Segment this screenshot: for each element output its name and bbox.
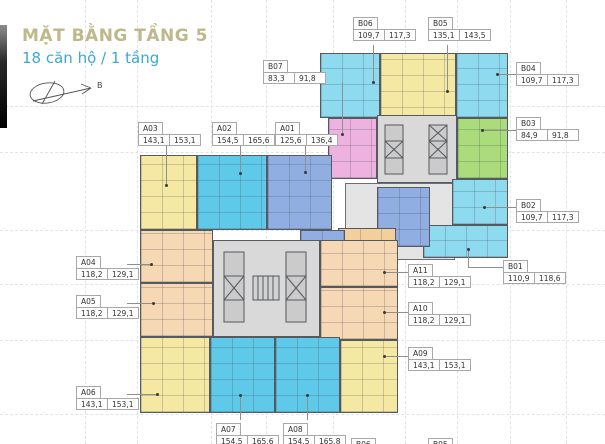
- apartment-label-a03: A03 143,1153,1: [138, 118, 201, 146]
- leader-dot: [150, 263, 153, 266]
- apartment-region-a01: [267, 155, 332, 230]
- apartment-region-b04: [456, 53, 508, 118]
- apartment-label-a05: A05 118,2129,1: [76, 291, 139, 319]
- apartment-label-a01: A01 125,6136,4: [275, 118, 338, 146]
- leader-dot: [304, 171, 307, 174]
- apartment-label-b02: B02 109,7117,3: [516, 195, 579, 223]
- apartment-label-b01: B01 110,9118,6: [503, 256, 566, 284]
- leader-dot: [341, 133, 344, 136]
- apartment-label-b06: B06 109,7117,3: [353, 13, 416, 41]
- leader-dot: [239, 394, 242, 397]
- apartment-label-a08: A08 154,5165,8: [283, 419, 346, 444]
- apartment-label-b07: B07 83,391,8: [263, 56, 326, 84]
- leader-line: [497, 74, 517, 75]
- left-edge-artifact: [0, 25, 7, 128]
- leader-dot: [165, 184, 168, 187]
- apartment-region-b02: [452, 179, 508, 225]
- grid-line: [0, 152, 605, 153]
- apartment-region-b06: [320, 53, 380, 118]
- apartment-region-a02: [197, 155, 267, 230]
- leader-dot: [481, 129, 484, 132]
- leader-dot: [372, 81, 375, 84]
- north-compass-icon: B: [25, 78, 110, 110]
- apartment-label-partial-2: B05: [428, 434, 453, 444]
- apartment-label-partial-1: B06: [351, 434, 376, 444]
- apartment-region-a04: [140, 230, 213, 283]
- apartment-label-a07: A07 154,5165,6: [216, 419, 279, 444]
- apartment-region-b03: [457, 118, 508, 179]
- apartment-region-a10: [320, 287, 398, 340]
- leader-dot: [467, 248, 470, 251]
- leader-dot: [156, 393, 159, 396]
- leader-dot: [152, 302, 155, 305]
- leader-line: [484, 207, 517, 208]
- leader-line: [373, 45, 374, 83]
- apartment-label-a02: A02 154,5165,6: [212, 118, 275, 146]
- apartment-label-a11: A11 118,2129,1: [408, 260, 471, 288]
- leader-line: [447, 45, 448, 92]
- leader-line: [166, 145, 167, 185]
- apartment-region-a07: [210, 337, 275, 413]
- apartment-region-a03: [140, 155, 197, 230]
- leader-dot: [483, 206, 486, 209]
- leader-line: [342, 82, 343, 135]
- leader-dot: [239, 172, 242, 175]
- apartment-label-b03: B03 84,991,8: [516, 113, 579, 141]
- apartment-label-a09: A09 143,1153,1: [408, 343, 471, 371]
- apartment-label-a06: A06 143,1153,1: [76, 382, 139, 410]
- apartment-label-b05: B05 135,1143,5: [428, 13, 491, 41]
- leader-line: [384, 272, 408, 273]
- leader-dot: [383, 311, 386, 314]
- leader-line: [384, 312, 408, 313]
- leader-dot: [383, 271, 386, 274]
- apartment-label-a10: A10 118,2129,1: [408, 298, 471, 326]
- leader-line: [482, 130, 517, 131]
- elevator-shafts-icon: [220, 248, 312, 328]
- leader-dot: [306, 394, 309, 397]
- leader-line: [240, 396, 241, 420]
- compass-north-label: B: [97, 81, 103, 90]
- apartment-region-a09: [340, 340, 398, 413]
- grid-line: [0, 414, 605, 415]
- apartment-region-a05: [140, 283, 213, 337]
- leader-line: [307, 396, 308, 420]
- grid-line: [510, 0, 511, 444]
- leader-dot: [383, 355, 386, 358]
- leader-line: [384, 356, 408, 357]
- page-title: MẶT BẰNG TẦNG 5: [22, 26, 208, 46]
- apartment-region-a06: [140, 337, 210, 413]
- leader-dot: [496, 73, 499, 76]
- page-subtitle: 18 căn hộ / 1 tầng: [22, 49, 208, 67]
- apartment-region-a11: [320, 240, 398, 287]
- elevator-shafts-icon: [383, 123, 451, 177]
- apartment-label-b04: B04 109,7117,3: [516, 58, 579, 86]
- apartment-label-a04: A04 118,2129,1: [76, 252, 139, 280]
- leader-line: [305, 145, 306, 172]
- leader-dot: [446, 90, 449, 93]
- leader-line: [240, 145, 241, 173]
- leader-line: [468, 267, 505, 268]
- apartment-region-b01: [423, 225, 508, 258]
- floorplan-canvas: MẶT BẰNG TẦNG 5 18 căn hộ / 1 tầng B: [0, 0, 605, 444]
